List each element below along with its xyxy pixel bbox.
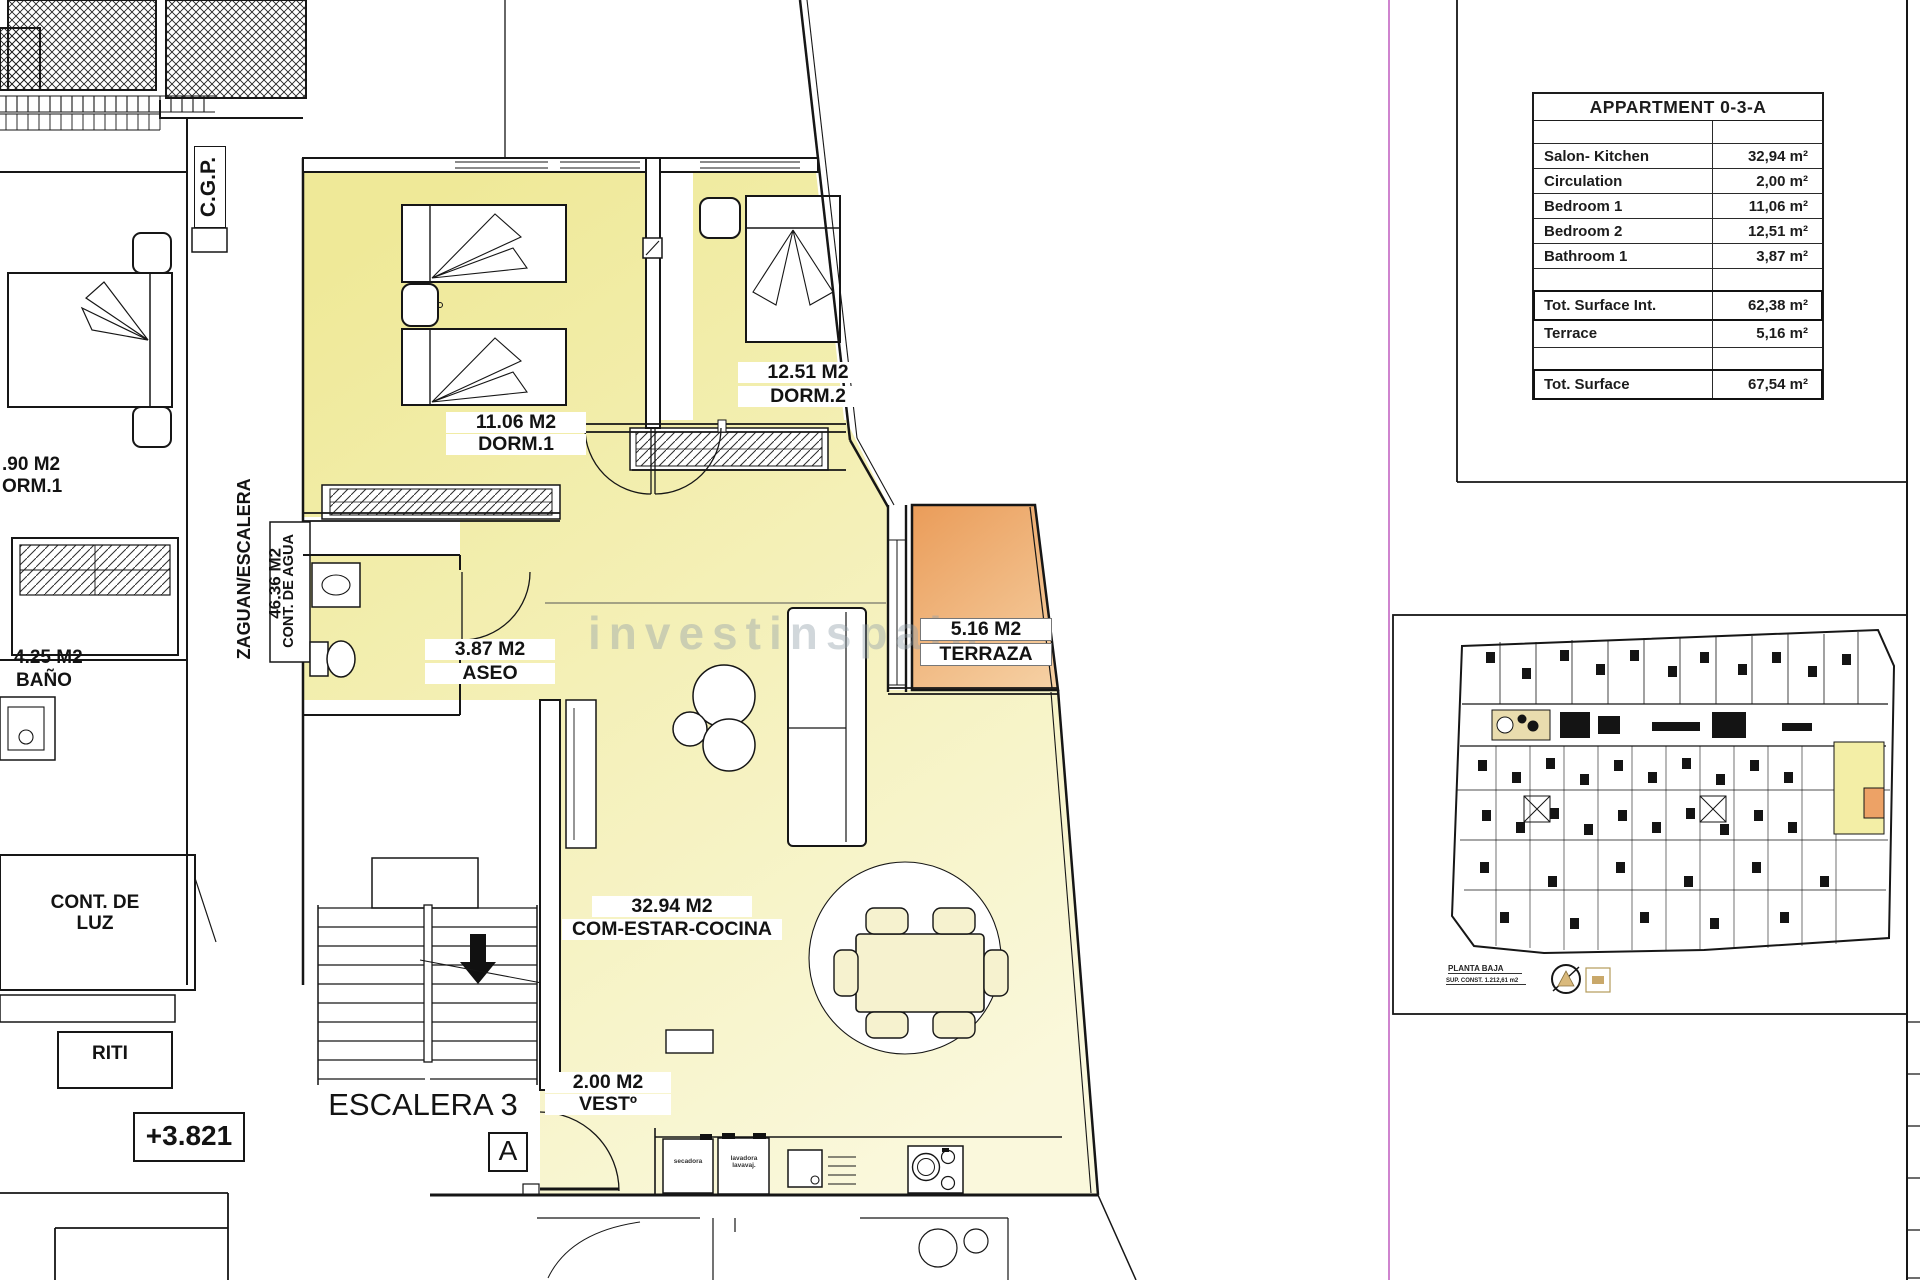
label-dorm1-name: DORM.1 <box>446 434 586 455</box>
table-row-total-int: Tot. Surface Int.62,38 m² <box>1534 292 1822 320</box>
label-dorm2-name: DORM.2 <box>738 386 878 407</box>
hatched-structure <box>0 0 306 130</box>
label-dorm2-area: 12.51 M2 <box>738 362 878 383</box>
mini-plan-caption-title: PLANTA BAJA <box>1448 964 1522 974</box>
table-row: Bathroom 13,87 m² <box>1534 244 1822 269</box>
floor-plan-sheet: investinspain C.G.P. ZAGUAN/ESCALERA 46.… <box>0 0 1920 1280</box>
label-neighbor-bath-name: BAÑO <box>16 671 106 692</box>
areas-table: APPARTMENT 0-3-A Salon- Kitchen32,94 m² … <box>1532 92 1824 400</box>
label-cont-agua: CONT. DE AGUA <box>282 526 298 656</box>
table-row: Bedroom 111,06 m² <box>1534 194 1822 219</box>
label-appliance-1: secadora <box>666 1158 710 1165</box>
label-terraza-area: 5.16 M2 <box>920 618 1052 641</box>
mini-plan-caption-sub: SUP. CONST. 1.212,61 m2 <box>1446 978 1526 985</box>
areas-table-title: APPARTMENT 0-3-A <box>1534 94 1822 121</box>
mini-plan <box>1452 630 1894 993</box>
label-level-mark: +3.821 <box>133 1112 245 1162</box>
label-dorm1-area: 11.06 M2 <box>446 412 586 433</box>
table-row: Salon- Kitchen32,94 m² <box>1534 144 1822 169</box>
table-row: Circulation2,00 m² <box>1534 169 1822 194</box>
label-neighbor-dorm-area: .90 M2 <box>2 455 82 476</box>
table-row: Bedroom 212,51 m² <box>1534 219 1822 244</box>
label-neighbor-dorm-name: ORM.1 <box>2 477 82 498</box>
label-appliance-2: lavadora lavavaj. <box>722 1155 766 1169</box>
label-salon-area: 32.94 M2 <box>592 896 752 917</box>
label-zaguan: ZAGUAN/ESCALERA <box>235 474 255 664</box>
label-neighbor-bath-area: 4.25 M2 <box>14 648 104 669</box>
label-cgp: C.G.P. <box>194 146 226 228</box>
table-row-terrace: Terrace5,16 m² <box>1534 320 1822 348</box>
label-aseo-name: ASEO <box>425 663 555 684</box>
label-riti: RITI <box>70 1044 150 1065</box>
label-escalera3: ESCALERA 3 <box>318 1088 528 1122</box>
label-stair-letter: A <box>488 1132 528 1172</box>
label-salon-name: COM-ESTAR-COCINA <box>562 919 782 940</box>
label-vest-area: 2.00 M2 <box>545 1072 671 1093</box>
label-cont-luz: CONT. DE LUZ <box>35 893 155 935</box>
label-vest-name: VESTº <box>545 1094 671 1115</box>
label-terraza-name: TERRAZA <box>920 643 1052 666</box>
table-row-total: Tot. Surface67,54 m² <box>1534 371 1822 398</box>
label-aseo-area: 3.87 M2 <box>425 639 555 660</box>
